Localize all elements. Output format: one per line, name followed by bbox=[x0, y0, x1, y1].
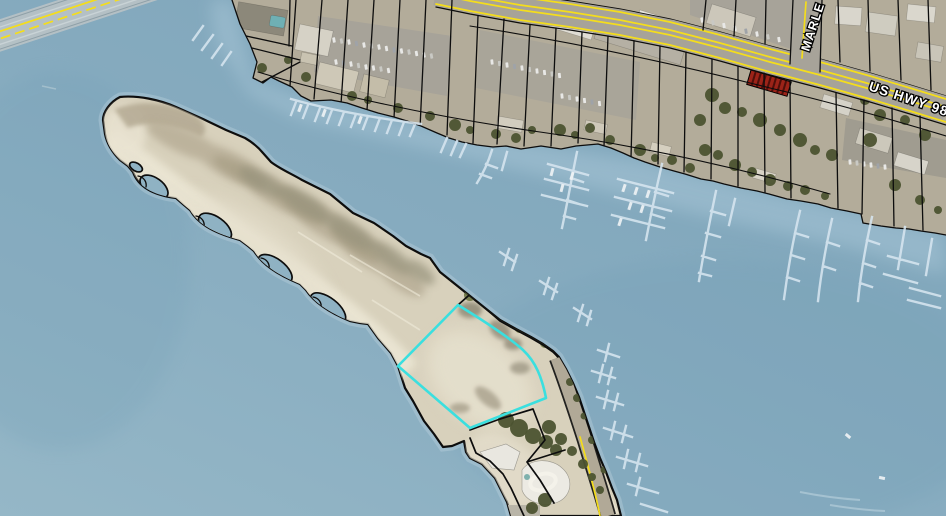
swimming-pool bbox=[269, 15, 286, 28]
map-viewport[interactable]: US HWY 98 MARLE bbox=[0, 0, 946, 516]
pool-water bbox=[524, 474, 530, 480]
aerial-map-canvas[interactable]: US HWY 98 MARLE bbox=[0, 0, 946, 516]
